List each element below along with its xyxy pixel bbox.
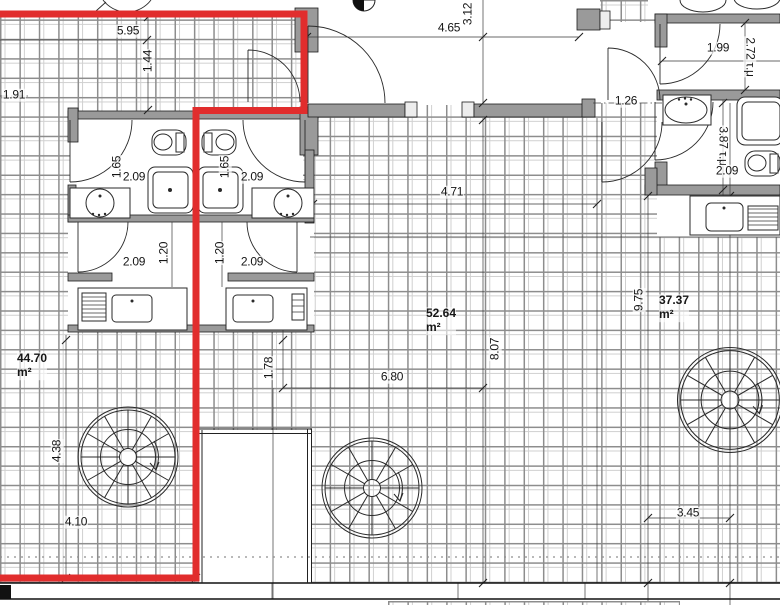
kitchen-counter-with-sink	[690, 196, 780, 235]
washbasin	[252, 188, 314, 218]
dimension-label: 1.99	[706, 42, 730, 55]
toilet	[152, 130, 186, 155]
area-unit: m²	[426, 321, 456, 335]
dimension-label: 1.44	[142, 49, 155, 73]
toilet	[745, 151, 780, 176]
room-area-label: 37.37 m²	[659, 294, 689, 322]
dimension-label: 1.78	[263, 356, 276, 380]
tiled-floor-strip	[388, 601, 680, 605]
area-value: 44.70	[17, 352, 47, 366]
dimension-label: 4.71	[440, 186, 464, 199]
dimension-label: 2.09	[122, 171, 146, 184]
room-area-label: 44.70 m²	[17, 352, 47, 380]
room-area-label: 2.72 τ.μ	[744, 36, 757, 77]
counter-with-sink	[78, 288, 187, 330]
dimension-label: 2.09	[715, 165, 739, 178]
dimension-label: 1.20	[158, 241, 171, 265]
dimension-label: 9.75	[633, 288, 646, 312]
dimension-label: 4.65	[437, 22, 461, 35]
room-area-label: 52.64 m²	[426, 307, 456, 335]
dimension-label: 2.09	[122, 256, 146, 269]
area-unit: m²	[17, 366, 47, 380]
dimension-label: 1.20	[214, 241, 227, 265]
toilet	[202, 130, 236, 155]
dimension-label: 1.91	[2, 89, 26, 102]
spiral-staircase-3	[678, 348, 780, 453]
area-value: 52.64	[426, 307, 456, 321]
washbasin	[663, 95, 711, 125]
spiral-staircase-1	[78, 407, 178, 507]
spiral-staircase-2	[322, 438, 422, 538]
shower-tray	[148, 167, 193, 213]
washbasin	[70, 188, 130, 218]
dimension-label: 3.45	[676, 507, 700, 520]
dimension-label: 3.12	[462, 2, 475, 26]
dimension-label: 1.26	[614, 95, 638, 108]
door-arc	[248, 50, 300, 102]
counter-with-sink	[226, 288, 307, 330]
area-value: 37.37	[659, 294, 689, 308]
dimension-label: 6.80	[380, 371, 404, 384]
floor-plan-canvas: 5.95 1.44 1.91 4.65 3.12 1.26 1.99 2.72 …	[0, 0, 780, 605]
dimension-label: 1.65	[219, 155, 232, 179]
dimension-label: 8.07	[489, 337, 502, 361]
dimension-label: 5.95	[116, 25, 140, 38]
shower-tray	[737, 97, 780, 145]
dimension-label: 2.09	[240, 171, 264, 184]
dimension-label: 4.38	[51, 439, 64, 463]
area-unit: m²	[659, 308, 689, 322]
dimension-label: 4.10	[64, 516, 88, 529]
room-area-label: 3.87 τ.μ	[717, 125, 730, 166]
dimension-label: 2.09	[240, 256, 264, 269]
